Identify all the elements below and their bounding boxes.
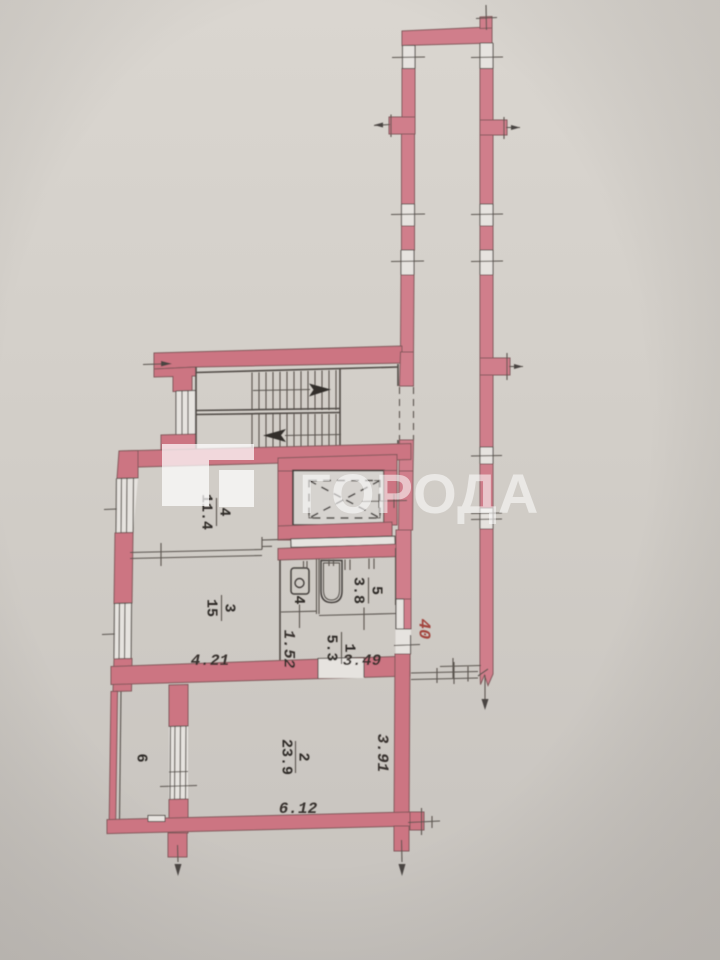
- svg-text:4: 4: [290, 595, 307, 604]
- svg-text:3.8: 3.8: [350, 577, 367, 604]
- svg-text:3: 3: [221, 603, 238, 612]
- svg-text:5: 5: [368, 586, 385, 595]
- svg-text:2: 2: [295, 752, 312, 761]
- svg-text:ГОРОДА: ГОРОДА: [299, 462, 539, 525]
- svg-text:40: 40: [414, 619, 433, 639]
- svg-text:3.49: 3.49: [343, 652, 382, 670]
- svg-text:4: 4: [216, 507, 233, 516]
- svg-text:4.21: 4.21: [191, 652, 229, 670]
- svg-text:15: 15: [203, 599, 220, 617]
- svg-text:1.52: 1.52: [280, 630, 298, 669]
- svg-text:23.9: 23.9: [278, 739, 295, 775]
- svg-text:3.91: 3.91: [373, 734, 391, 772]
- svg-text:6.12: 6.12: [279, 800, 318, 818]
- svg-text:6: 6: [133, 753, 150, 762]
- svg-text:5.3: 5.3: [323, 634, 340, 661]
